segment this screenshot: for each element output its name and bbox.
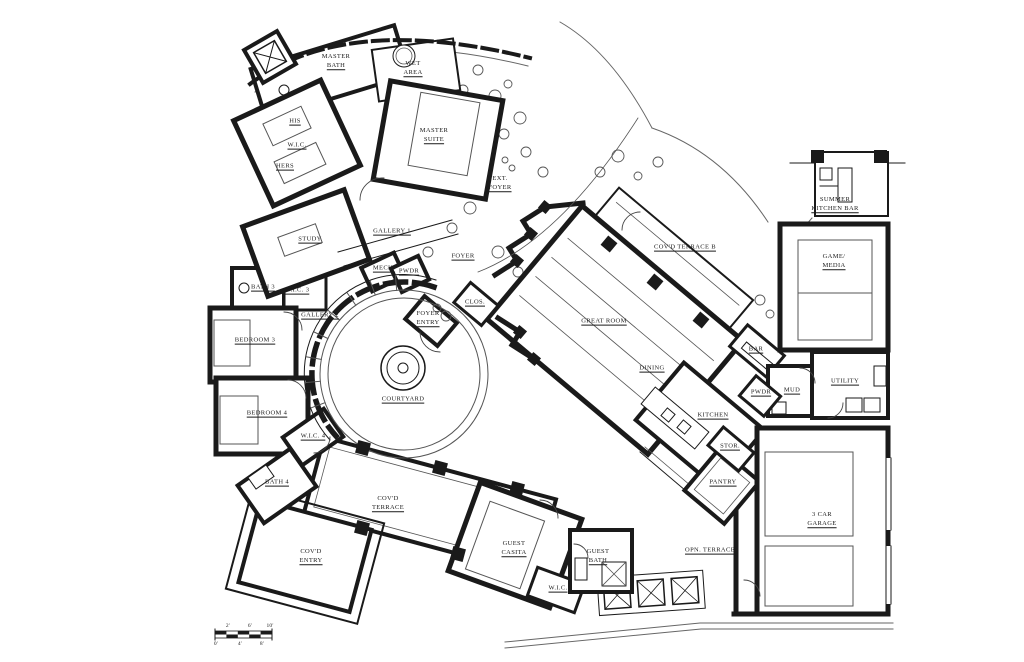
courtyard-fountain bbox=[381, 346, 425, 390]
floor-plan-drawing bbox=[0, 0, 1024, 662]
scale-bar bbox=[215, 629, 272, 640]
floor-plan-page: MASTERBATHWETAREAHISW.I.C.HERSMASTERSUIT… bbox=[0, 0, 1024, 662]
